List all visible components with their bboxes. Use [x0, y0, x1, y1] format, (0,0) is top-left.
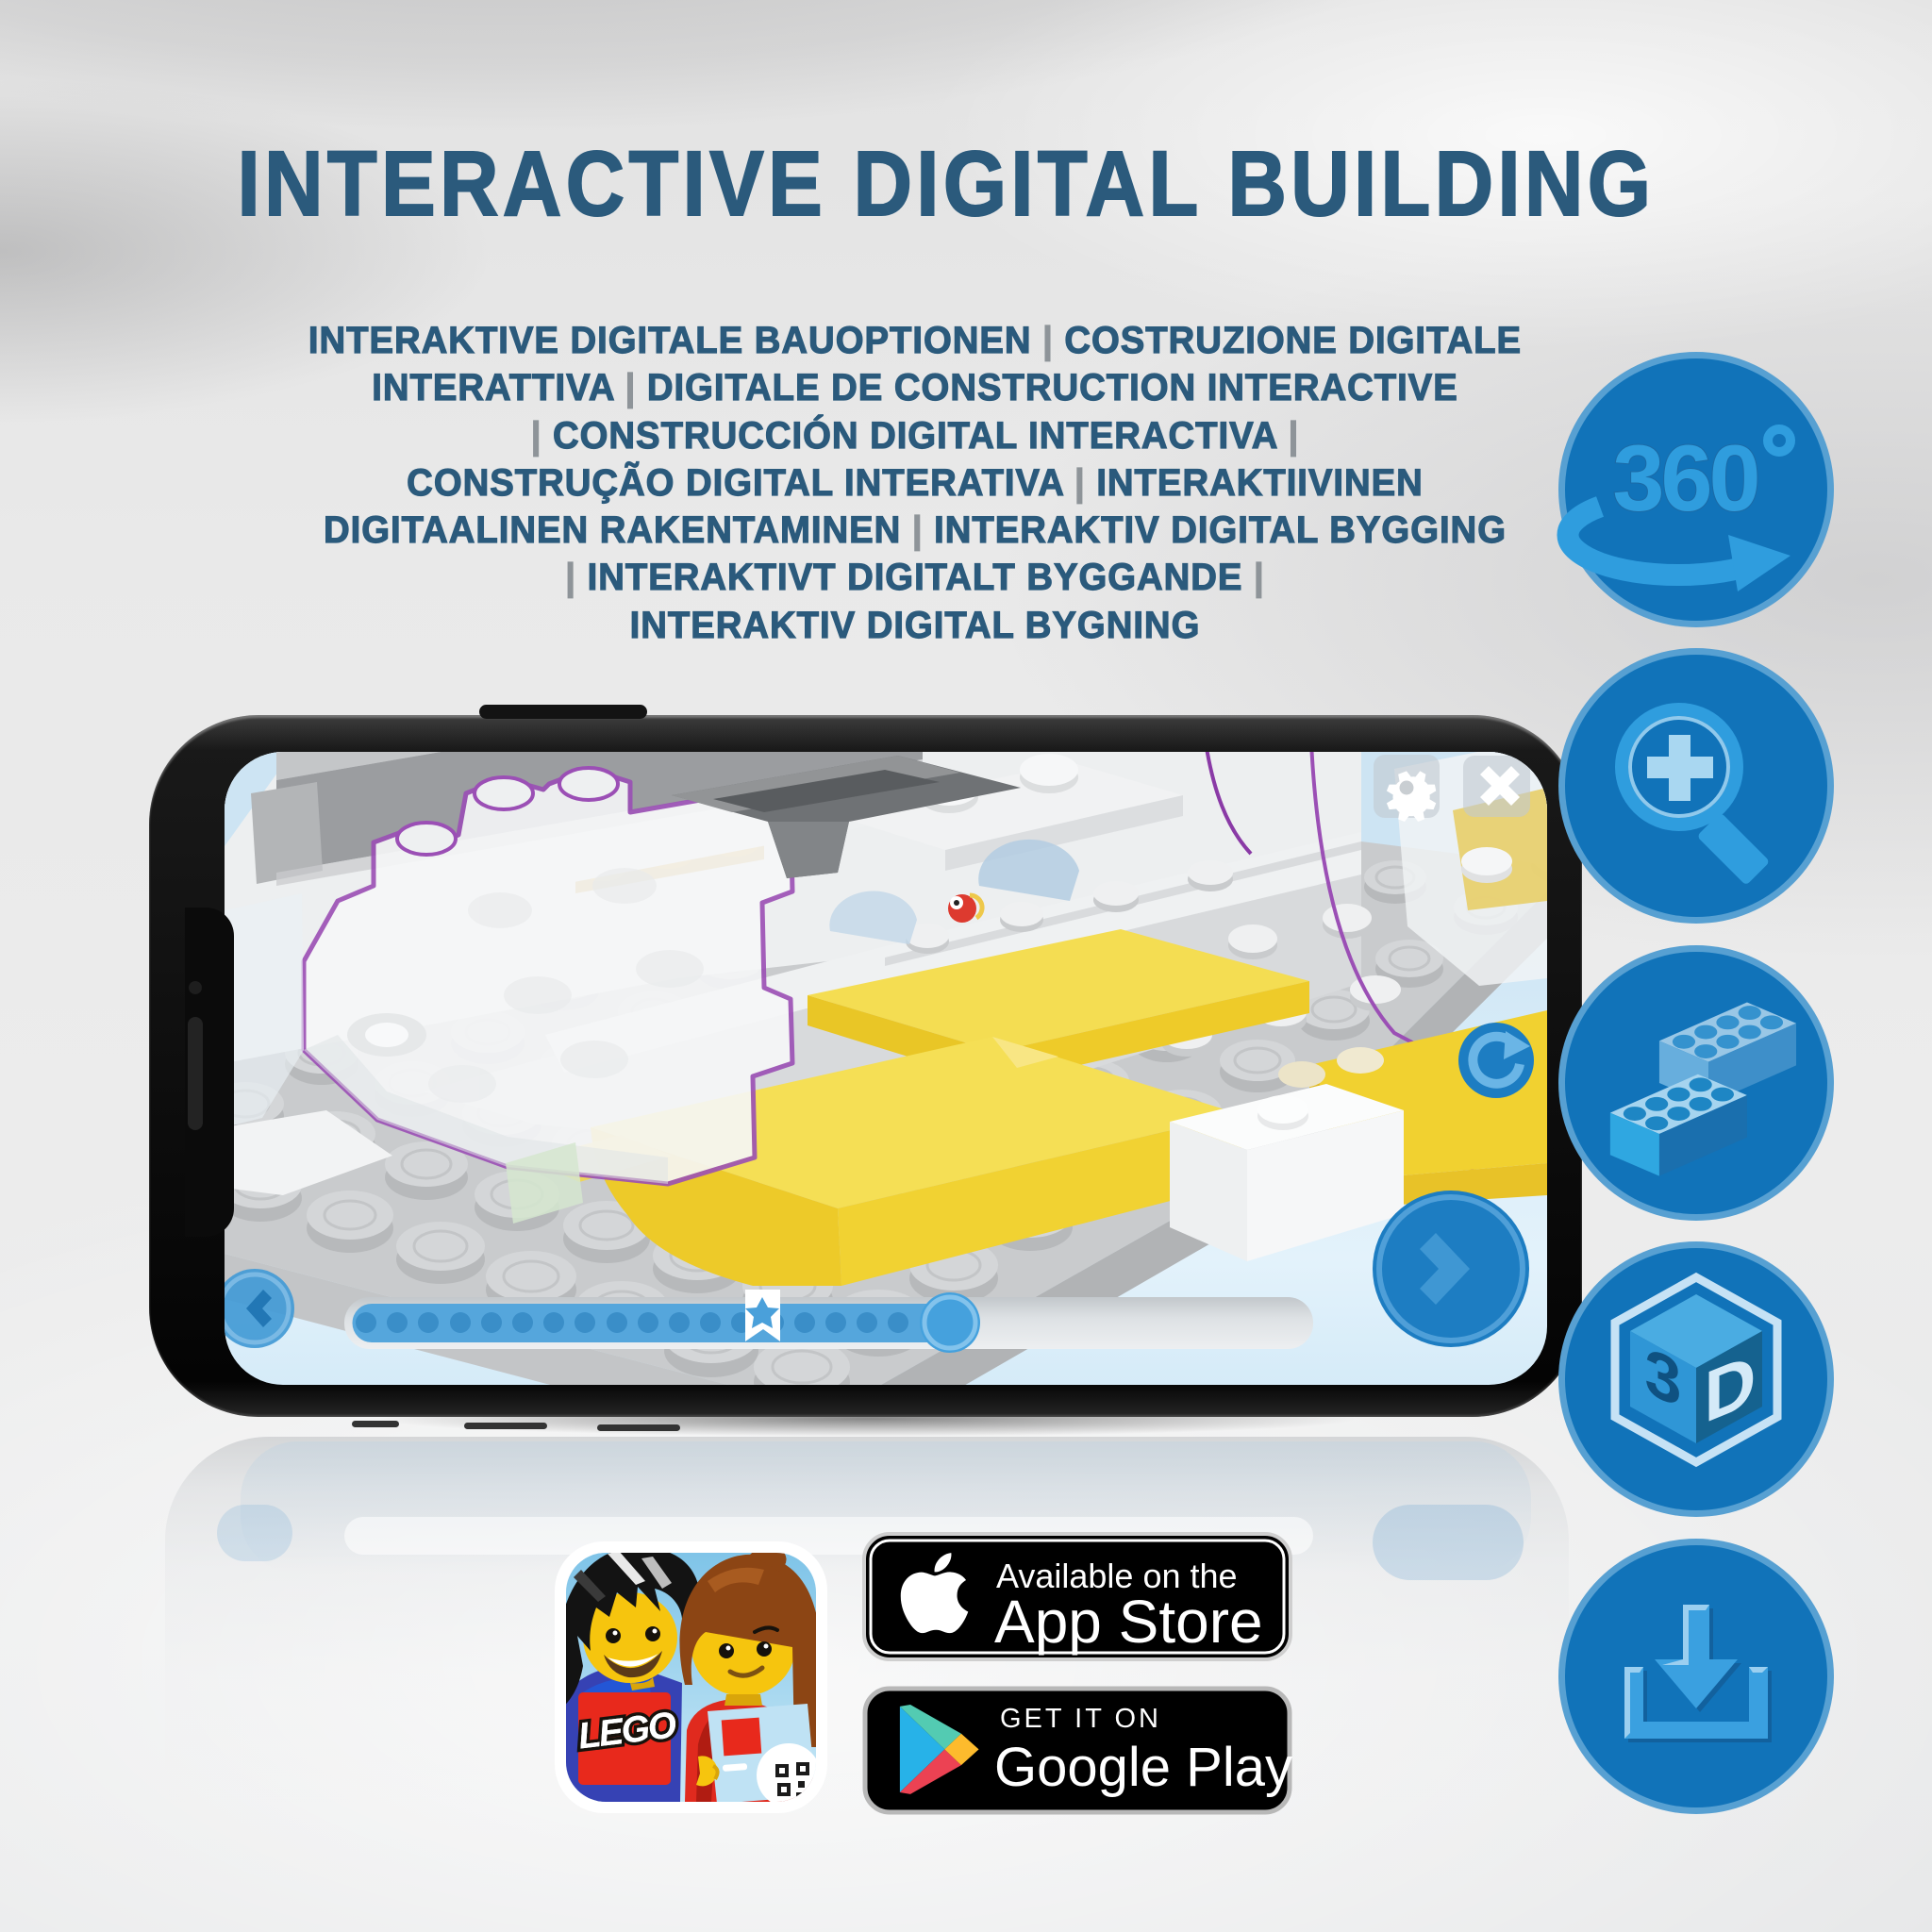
- svg-text:360: 360: [1612, 425, 1757, 530]
- svg-text:Google Play: Google Play: [994, 1737, 1292, 1798]
- svg-text:GET IT ON: GET IT ON: [1000, 1704, 1161, 1734]
- svg-text:App Store: App Store: [994, 1588, 1263, 1656]
- svg-text:3: 3: [1645, 1333, 1682, 1422]
